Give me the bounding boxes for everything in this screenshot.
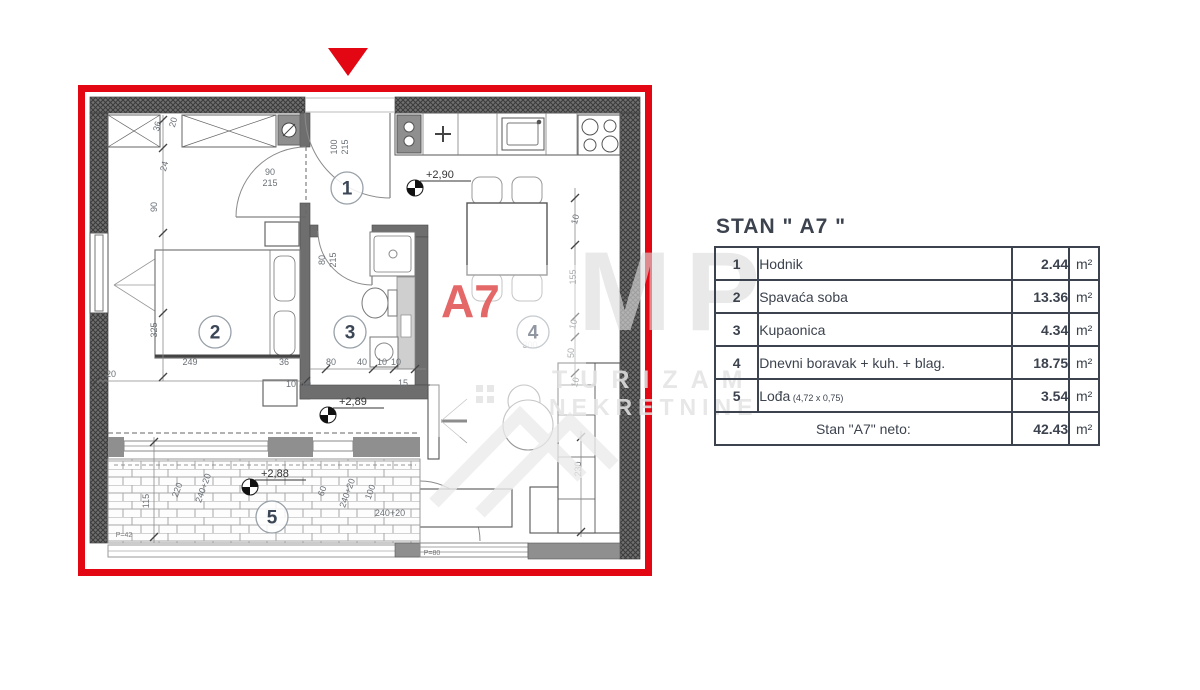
area-table: 1Hodnik2.44m²2Spavaća soba13.36m²3Kupaon…: [714, 246, 1100, 446]
total-value-cell: 42.43: [1012, 412, 1070, 445]
shaft: [397, 277, 415, 369]
unit-cell: m²: [1069, 346, 1099, 379]
dim-label: 24: [158, 160, 170, 172]
dim-label: 10: [377, 357, 387, 367]
pier: [353, 437, 420, 457]
table-row: 2Spavaća soba13.36m²: [715, 280, 1099, 313]
pier: [108, 437, 124, 457]
nightstand: [265, 222, 299, 246]
area-value-cell: 4.34: [1012, 313, 1070, 346]
table-row: 5Lođa (4,72 x 0,75)3.54m²: [715, 379, 1099, 412]
area-label: P=80: [424, 550, 441, 557]
loggia-glazing: [313, 441, 353, 451]
room-number: 2: [210, 323, 221, 344]
unit-label-a7: A7: [441, 275, 500, 327]
row-number-cell: 4: [715, 346, 758, 379]
dim-label: 90: [149, 202, 159, 212]
row-number-cell: 3: [715, 313, 758, 346]
shower: [370, 232, 415, 276]
unit-cell: m²: [1069, 313, 1099, 346]
room-number: 1: [342, 179, 353, 200]
elevation-label: +2,90: [426, 169, 454, 181]
area-table-panel: STAN " A7 " 1Hodnik2.44m²2Spavaća soba13…: [714, 215, 1100, 446]
dim-label: 215: [328, 252, 338, 267]
floor-plan: 3620249032510021590215802152493620101080…: [78, 85, 652, 576]
room-number: 5: [267, 508, 278, 529]
elevation-label: +2,89: [339, 396, 367, 408]
wardrobe: [108, 115, 300, 147]
elevation-label: +2,88: [261, 468, 289, 480]
dim-label: 90: [265, 167, 275, 177]
room-name-cell: Dnevni boravak + kuh. + blag.: [758, 346, 1012, 379]
dim-label: 115: [141, 494, 151, 508]
unit-cell: m²: [1069, 247, 1099, 280]
dim-label: 100: [329, 139, 339, 154]
dim-label: 215: [262, 178, 277, 188]
area-value-cell: 18.75: [1012, 346, 1070, 379]
dining-table: [467, 203, 547, 275]
area-label: P=42: [116, 532, 133, 539]
stove-icon: [578, 115, 620, 155]
dim-label: 10: [569, 213, 581, 225]
row-number-cell: 5: [715, 379, 758, 412]
room-name-cell: Kupaonica: [758, 313, 1012, 346]
total-label-cell: Stan "A7" neto:: [715, 412, 1012, 445]
toilet: [362, 288, 397, 318]
dim-label: 215: [340, 139, 350, 154]
bedroom-window: [90, 233, 162, 313]
dim-label: 40: [357, 357, 367, 367]
row-number-cell: 2: [715, 280, 758, 313]
pier: [268, 437, 313, 457]
dim-label: 80: [317, 255, 327, 265]
unit-cell: m²: [1069, 280, 1099, 313]
dim-label: 20: [106, 369, 116, 379]
room-number: 3: [345, 323, 356, 344]
panel-title: STAN " A7 ": [716, 215, 1100, 239]
area-value-cell: 3.54: [1012, 379, 1070, 412]
room-name-cell: Lođa (4,72 x 0,75): [758, 379, 1012, 412]
chair: [512, 177, 542, 205]
entrance-marker-icon: [328, 48, 368, 76]
dim-label: 10: [301, 379, 311, 389]
dim-label: 10: [391, 357, 401, 367]
total-row: Stan "A7" neto:42.43m²: [715, 412, 1099, 445]
room-name-cell: Hodnik: [758, 247, 1012, 280]
chair: [472, 177, 502, 205]
table-row: 3Kupaonica4.34m²: [715, 313, 1099, 346]
dim-label: 20: [167, 116, 179, 128]
table-row: 4Dnevni boravak + kuh. + blag.18.75m²: [715, 346, 1099, 379]
dim-label: 15: [398, 378, 408, 388]
unit-cell: m²: [1069, 379, 1099, 412]
area-value-cell: 13.36: [1012, 280, 1070, 313]
area-value-cell: 2.44: [1012, 247, 1070, 280]
dim-label: 80: [326, 357, 336, 367]
tall-unit: [397, 115, 421, 153]
table-row: 1Hodnik2.44m²: [715, 247, 1099, 280]
room-name-note: (4,72 x 0,75): [790, 393, 843, 403]
dim-label: 249: [182, 357, 197, 367]
dim-label: 10: [286, 379, 296, 389]
room-name-cell: Spavaća soba: [758, 280, 1012, 313]
bed: [155, 222, 300, 406]
kitchen-counter: [395, 113, 620, 155]
dim-label: 325: [149, 322, 159, 337]
dim-label: 240+20: [375, 508, 405, 518]
unit-cell: m²: [1069, 412, 1099, 445]
dim-label: 36: [279, 357, 289, 367]
kitchen-sink: [502, 118, 544, 150]
row-number-cell: 1: [715, 247, 758, 280]
